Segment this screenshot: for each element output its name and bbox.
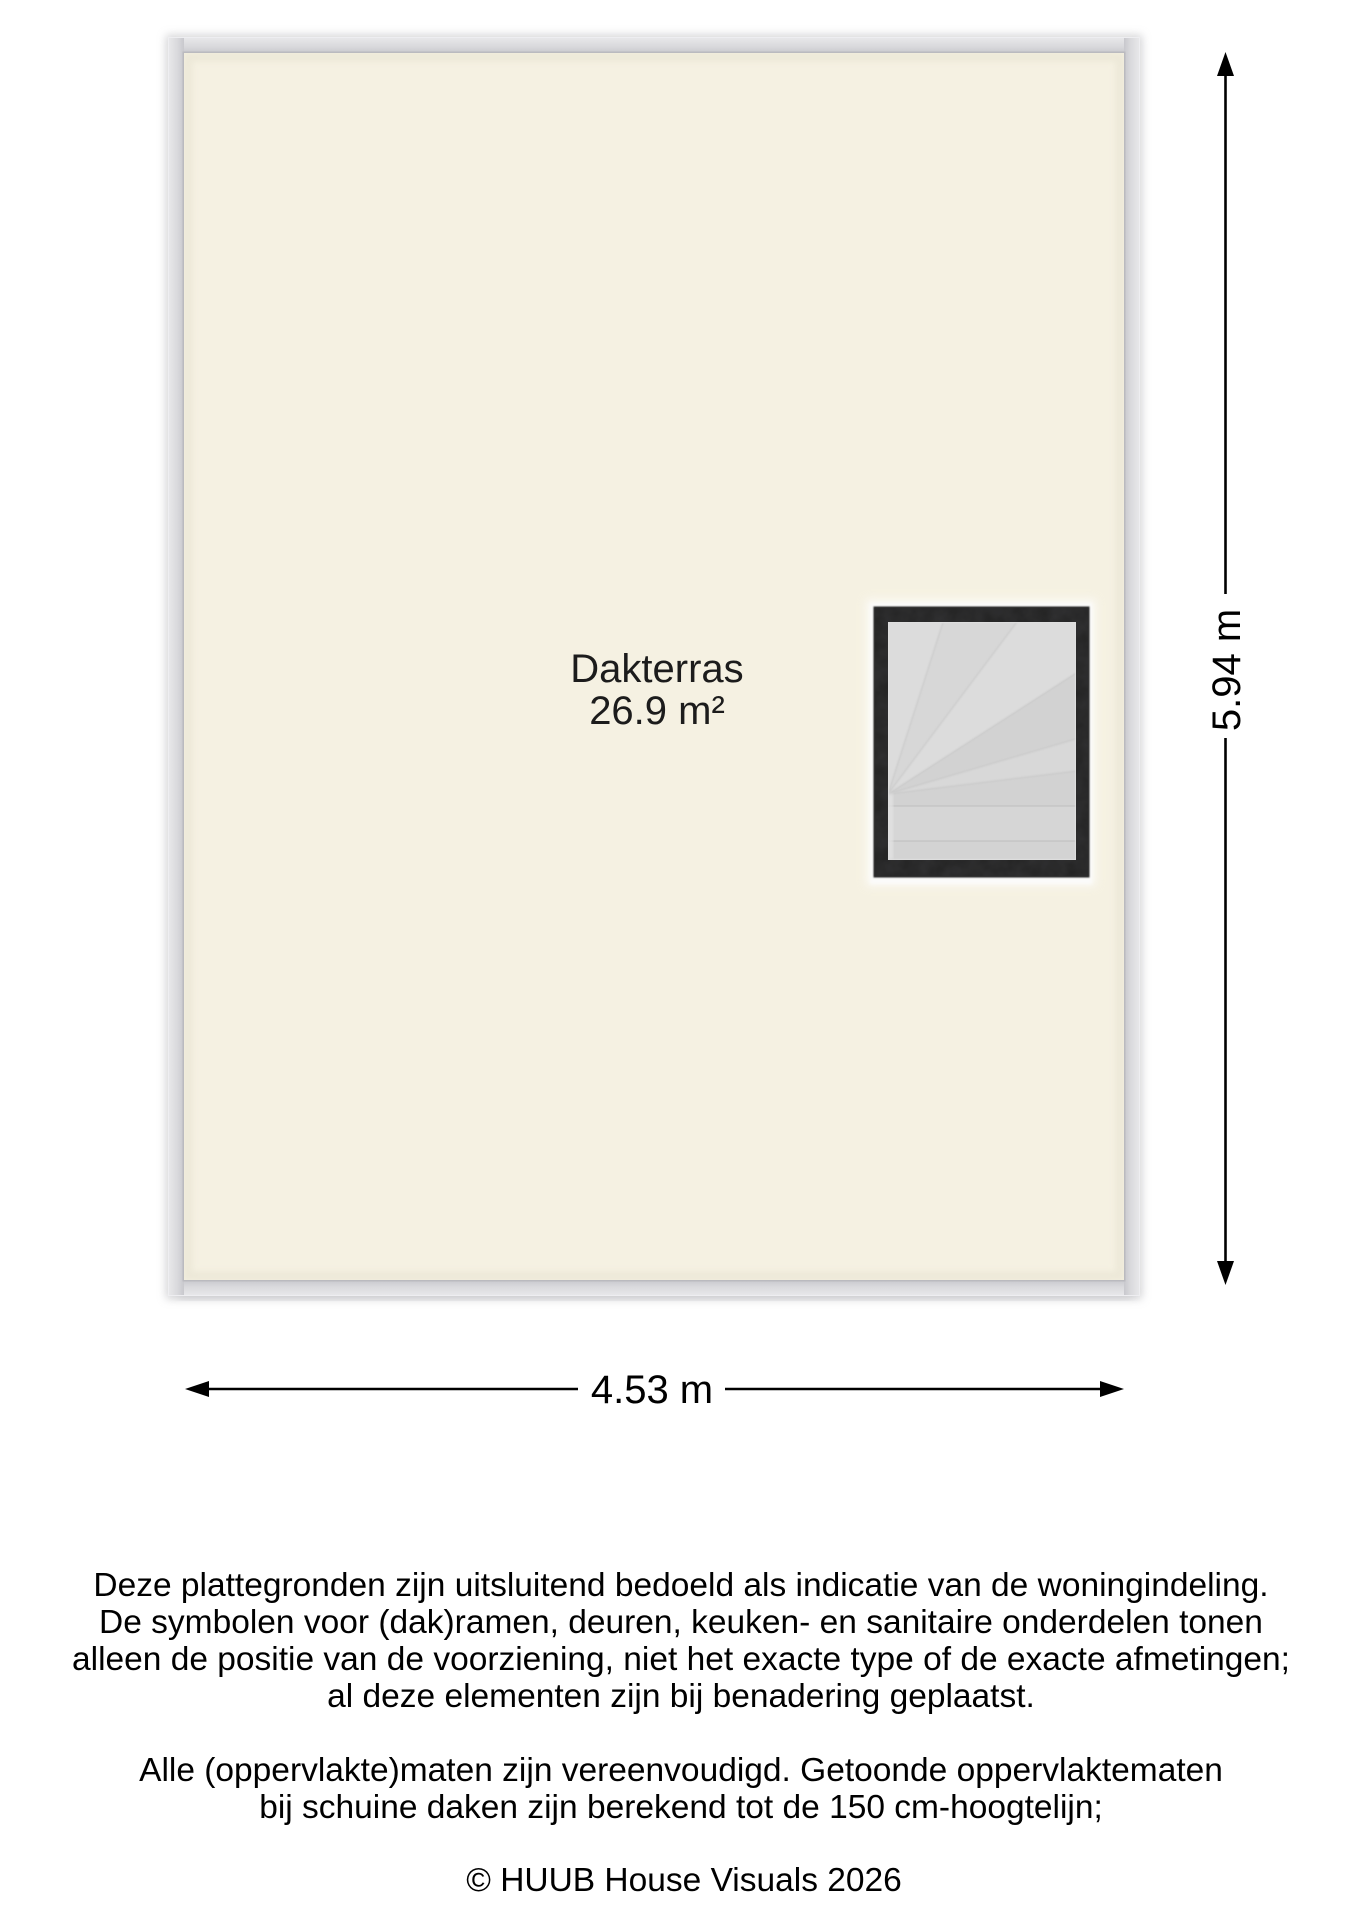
- svg-text:Deze plattegronden zijn uitslu: Deze plattegronden zijn uitsluitend bedo…: [93, 1567, 1268, 1604]
- svg-text:Alle (oppervlakte)maten zijn v: Alle (oppervlakte)maten zijn vereenvoudi…: [139, 1752, 1223, 1789]
- svg-text:bij schuine daken zijn bereken: bij schuine daken zijn berekend tot de 1…: [259, 1789, 1103, 1826]
- svg-text:De symbolen voor (dak)ramen, d: De symbolen voor (dak)ramen, deuren, keu…: [99, 1604, 1263, 1641]
- svg-text:Dakterras: Dakterras: [570, 647, 743, 691]
- svg-text:4.53 m: 4.53 m: [591, 1368, 713, 1412]
- svg-text:al deze elementen zijn bij ben: al deze elementen zijn bij benadering ge…: [327, 1678, 1035, 1715]
- svg-text:26.9 m²: 26.9 m²: [589, 689, 725, 733]
- svg-text:alleen de positie van de voorz: alleen de positie van de voorziening, ni…: [72, 1641, 1290, 1678]
- svg-text:5.94 m: 5.94 m: [1205, 609, 1249, 731]
- svg-text:© HUUB House Visuals 2026: © HUUB House Visuals 2026: [466, 1862, 902, 1899]
